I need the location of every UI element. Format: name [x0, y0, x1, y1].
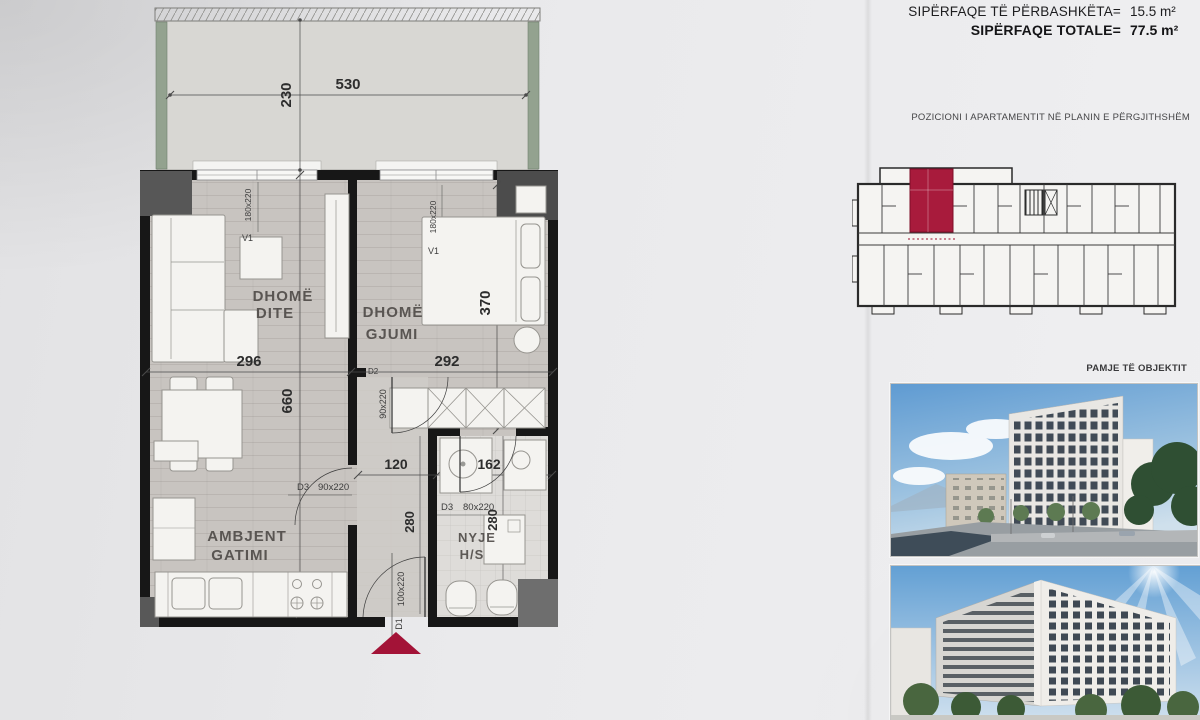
entrance-marker — [371, 632, 421, 654]
dim-apartment-height: 660 — [279, 388, 296, 413]
building-position-plan — [852, 158, 1192, 330]
kitchen-label-1: AMBJENT — [207, 528, 287, 545]
tall-cabinet — [325, 194, 349, 338]
bath-door-id: D3 — [441, 502, 453, 513]
living-window-id: V1 — [242, 233, 253, 243]
dim-bedroom-depth: 370 — [477, 290, 494, 315]
dim-bedroom-width: 292 — [434, 353, 459, 370]
views-section-title: PAMJE TË OBJEKTIT — [1086, 363, 1187, 374]
living-room-label-2: DITE — [256, 305, 294, 322]
entry-door-size: 100x220 — [396, 572, 406, 607]
bath-label-2: H/S — [460, 547, 485, 562]
dim-balcony-depth: 230 — [278, 82, 295, 107]
pavement — [891, 715, 1200, 720]
highlighted-apartment — [908, 169, 955, 239]
kitchen-door-size: 90x220 — [318, 482, 349, 493]
bedroom-label-2: GJUMI — [366, 326, 419, 343]
total-area-label: SIPËRFAQE TOTALE= — [971, 21, 1121, 40]
nightstand — [516, 186, 546, 213]
bedroom-door-size: 90x220 — [378, 389, 388, 419]
stool — [514, 327, 540, 353]
dim-balcony-width: 530 — [335, 76, 360, 93]
kitchen-door-id: D3 — [297, 482, 309, 493]
bedroom-label-1: DHOMË — [363, 304, 424, 321]
plan-sheet: SIPËRFAQE TË PËRBASHKËTA= 15.5 m² SIPËRF… — [0, 0, 1200, 720]
bedroom-window-size: 180x220 — [428, 200, 438, 233]
balcony-glass-right — [528, 22, 539, 169]
bath-sink — [504, 440, 546, 490]
entry-door-id: D1 — [394, 618, 404, 630]
sink — [172, 578, 205, 609]
bidet — [487, 580, 517, 615]
balcony-railing — [155, 8, 540, 21]
balcony-glass-left — [156, 22, 167, 169]
area-summary: SIPËRFAQE TË PËRBASHKËTA= 15.5 m² SIPËRF… — [908, 2, 1192, 40]
total-area-value: 77.5 m² — [1121, 21, 1192, 40]
kitchen-counter — [155, 572, 347, 617]
stair-core — [1025, 190, 1057, 215]
building-render-2 — [890, 565, 1200, 720]
dim-hall-depth: 280 — [402, 511, 417, 533]
common-area-label: SIPËRFAQE TË PËRBASHKËTA= — [908, 2, 1121, 21]
bath-door-size: 80x220 — [463, 502, 494, 513]
living-window-size: 180x220 — [243, 188, 253, 221]
bedroom-window-id: V1 — [428, 246, 439, 256]
dim-bath-width: 162 — [477, 456, 501, 472]
common-area-value: 15.5 m² — [1121, 2, 1192, 21]
living-room-label-1: DHOMË — [253, 288, 314, 305]
position-section-title: POZICIONI I APARTAMENTIT NË PLANIN E PËR… — [911, 112, 1190, 123]
side-table — [240, 237, 282, 279]
wardrobe — [390, 388, 545, 428]
building-render-1 — [890, 383, 1198, 557]
apartment-floor-plan: 530 230 296 292 370 660 120 162 280 280 … — [0, 0, 880, 720]
dim-hall-width: 120 — [384, 456, 408, 472]
kitchen-label-2: GATIMI — [211, 547, 268, 564]
bedroom-door-id: D2 — [368, 367, 379, 376]
radiator — [154, 441, 198, 461]
common-area-row: SIPËRFAQE TË PËRBASHKËTA= 15.5 m² — [908, 2, 1192, 21]
dim-living-width: 296 — [236, 353, 261, 370]
toilet — [446, 581, 476, 616]
fridge — [153, 498, 195, 560]
bath-label-1: NYJE — [458, 530, 496, 545]
total-area-row: SIPËRFAQE TOTALE= 77.5 m² — [908, 21, 1192, 40]
